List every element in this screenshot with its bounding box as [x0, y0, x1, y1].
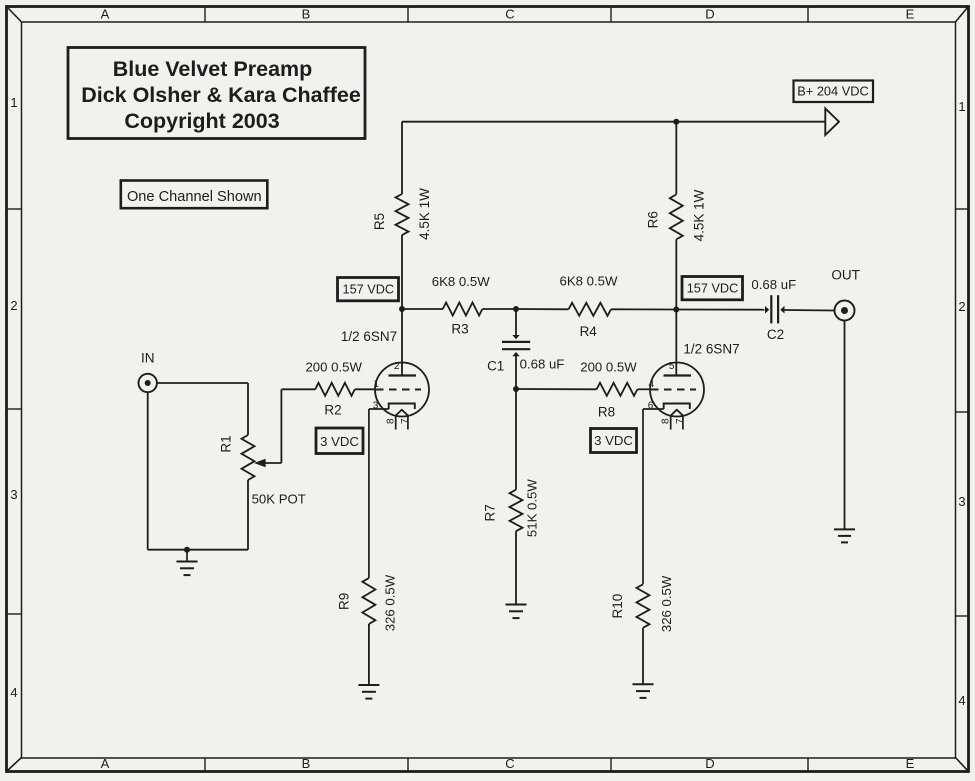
svg-text:B+ 204 VDC: B+ 204 VDC — [797, 84, 869, 99]
svg-text:R5: R5 — [372, 213, 387, 230]
svg-text:C2: C2 — [767, 327, 784, 342]
svg-text:R10: R10 — [610, 594, 625, 619]
svg-text:R3: R3 — [451, 322, 468, 337]
svg-text:C1: C1 — [487, 359, 504, 374]
svg-text:8: 8 — [385, 418, 396, 424]
svg-text:A: A — [101, 7, 110, 22]
svg-text:0.68 uF: 0.68 uF — [751, 277, 796, 292]
svg-text:B: B — [302, 756, 311, 771]
svg-text:7: 7 — [675, 418, 686, 424]
svg-text:3 VDC: 3 VDC — [320, 434, 359, 449]
svg-text:D: D — [705, 7, 714, 22]
svg-text:4: 4 — [10, 685, 17, 700]
svg-text:4.5K 1W: 4.5K 1W — [692, 189, 707, 241]
svg-text:4: 4 — [958, 693, 965, 708]
svg-text:A: A — [101, 756, 110, 771]
svg-text:One Channel Shown: One Channel Shown — [127, 189, 262, 205]
svg-text:Copyright 2003: Copyright 2003 — [124, 109, 279, 133]
svg-text:326 0.5W: 326 0.5W — [383, 574, 398, 631]
svg-text:Dick Olsher & Kara Chaffee: Dick Olsher & Kara Chaffee — [81, 83, 361, 107]
svg-text:200 0.5W: 200 0.5W — [305, 359, 362, 374]
svg-text:R1: R1 — [219, 435, 234, 452]
svg-text:E: E — [906, 7, 915, 22]
svg-text:1: 1 — [374, 379, 380, 390]
svg-text:R7: R7 — [482, 504, 497, 521]
svg-text:5: 5 — [669, 361, 675, 372]
svg-text:326 0.5W: 326 0.5W — [659, 575, 674, 632]
svg-text:E: E — [906, 756, 915, 771]
svg-text:200 0.5W: 200 0.5W — [580, 360, 637, 375]
svg-text:0.68 uF: 0.68 uF — [520, 356, 565, 371]
svg-text:2: 2 — [394, 361, 400, 372]
svg-text:B: B — [302, 7, 311, 22]
svg-text:51K 0.5W: 51K 0.5W — [525, 479, 540, 537]
svg-text:R9: R9 — [337, 593, 352, 610]
svg-text:6K8 0.5W: 6K8 0.5W — [560, 273, 618, 288]
svg-text:4: 4 — [649, 379, 655, 390]
svg-text:2: 2 — [10, 298, 17, 313]
svg-text:R6: R6 — [646, 211, 661, 228]
svg-text:2: 2 — [958, 299, 965, 314]
svg-text:157 VDC: 157 VDC — [343, 283, 394, 297]
svg-text:C: C — [505, 756, 514, 771]
svg-text:1: 1 — [958, 99, 965, 114]
svg-text:50K POT: 50K POT — [252, 492, 306, 507]
svg-text:1/2 6SN7: 1/2 6SN7 — [341, 329, 397, 344]
svg-text:3: 3 — [373, 401, 379, 412]
svg-text:D: D — [705, 756, 714, 771]
svg-text:3: 3 — [10, 487, 17, 502]
svg-text:3: 3 — [958, 494, 965, 509]
svg-text:IN: IN — [141, 351, 155, 366]
svg-text:Blue Velvet Preamp: Blue Velvet Preamp — [113, 57, 313, 81]
svg-text:6K8 0.5W: 6K8 0.5W — [432, 274, 490, 289]
svg-text:157 VDC: 157 VDC — [687, 282, 738, 296]
svg-text:1/2 6SN7: 1/2 6SN7 — [683, 342, 739, 357]
svg-text:7: 7 — [400, 418, 411, 424]
svg-text:3 VDC: 3 VDC — [594, 433, 633, 448]
svg-text:OUT: OUT — [831, 268, 860, 283]
svg-text:C: C — [505, 7, 514, 22]
svg-text:R2: R2 — [324, 402, 341, 417]
svg-text:R8: R8 — [598, 404, 615, 419]
svg-text:8: 8 — [660, 418, 671, 424]
svg-text:1: 1 — [10, 95, 17, 110]
svg-text:4.5K 1W: 4.5K 1W — [417, 188, 432, 240]
svg-text:6: 6 — [648, 401, 654, 412]
svg-text:R4: R4 — [580, 324, 598, 339]
